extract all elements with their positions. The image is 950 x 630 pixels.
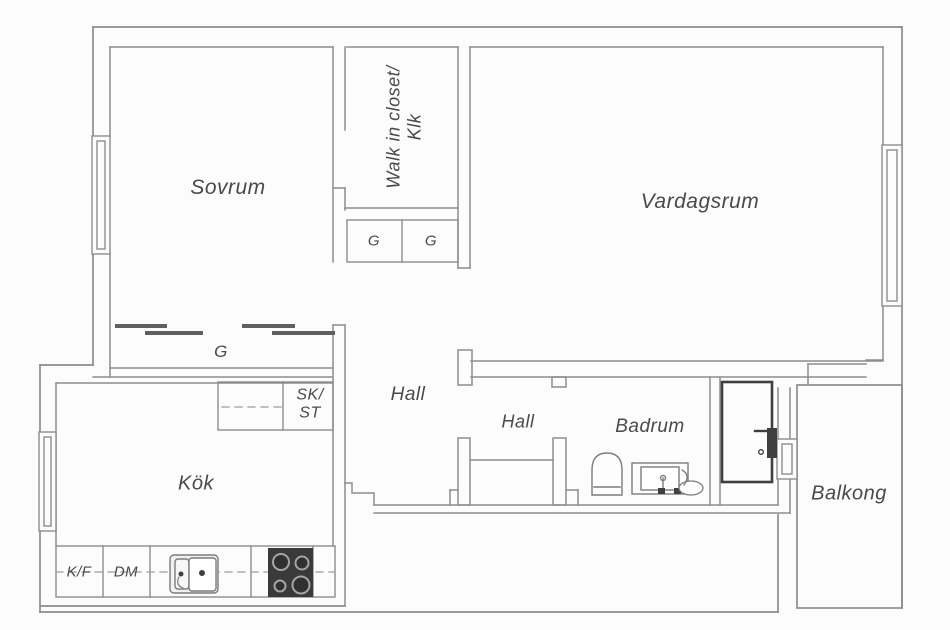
walk-in-closet-line2: Klk [404,114,424,141]
kitchen-sink-icon [170,555,218,593]
g-cabinets [347,220,458,262]
cabinet-g-left-label: G [368,232,380,249]
room-label-sovrum: Sovrum [190,176,265,200]
room-label-vardagsrum: Vardagsrum [641,190,760,214]
sliding-door-icon [115,324,335,335]
appliance-label-fridge-freezer: K/F [67,563,92,580]
room-label-hall-outer: Hall [391,384,426,406]
room-label-badrum: Badrum [615,416,685,438]
floor-plan-drawing [0,0,950,630]
floor-plan: Sovrum Vardagsrum Walk in closet/Klk G G… [0,0,950,630]
room-label-walk-in-closet: Walk in closet/Klk [383,65,424,188]
wardrobe-g-label: G [214,342,228,362]
room-label-kok: Kök [178,473,214,496]
cabinet-g-right-label: G [425,232,437,249]
stove-icon [268,548,313,597]
interior-walls [56,47,883,606]
window-icon-livingroom [882,145,902,306]
room-label-hall-inner: Hall [501,412,534,433]
cabinet-sk-st-label: SK/ST [296,387,323,424]
window-icon-balcony [777,439,797,479]
window-icon-kitchen [39,432,56,531]
appliance-label-dishwasher: DM [114,563,138,580]
window-icon-bedroom [92,136,110,254]
toilet-icon [592,453,622,495]
sk-st-line1: SK/ [296,387,323,404]
exterior-walls [40,27,902,612]
front-door-icon [722,382,777,482]
walk-in-closet-line1: Walk in closet/ [383,65,403,188]
sk-st-line2: ST [299,405,320,422]
room-label-balkong: Balkong [811,483,887,506]
